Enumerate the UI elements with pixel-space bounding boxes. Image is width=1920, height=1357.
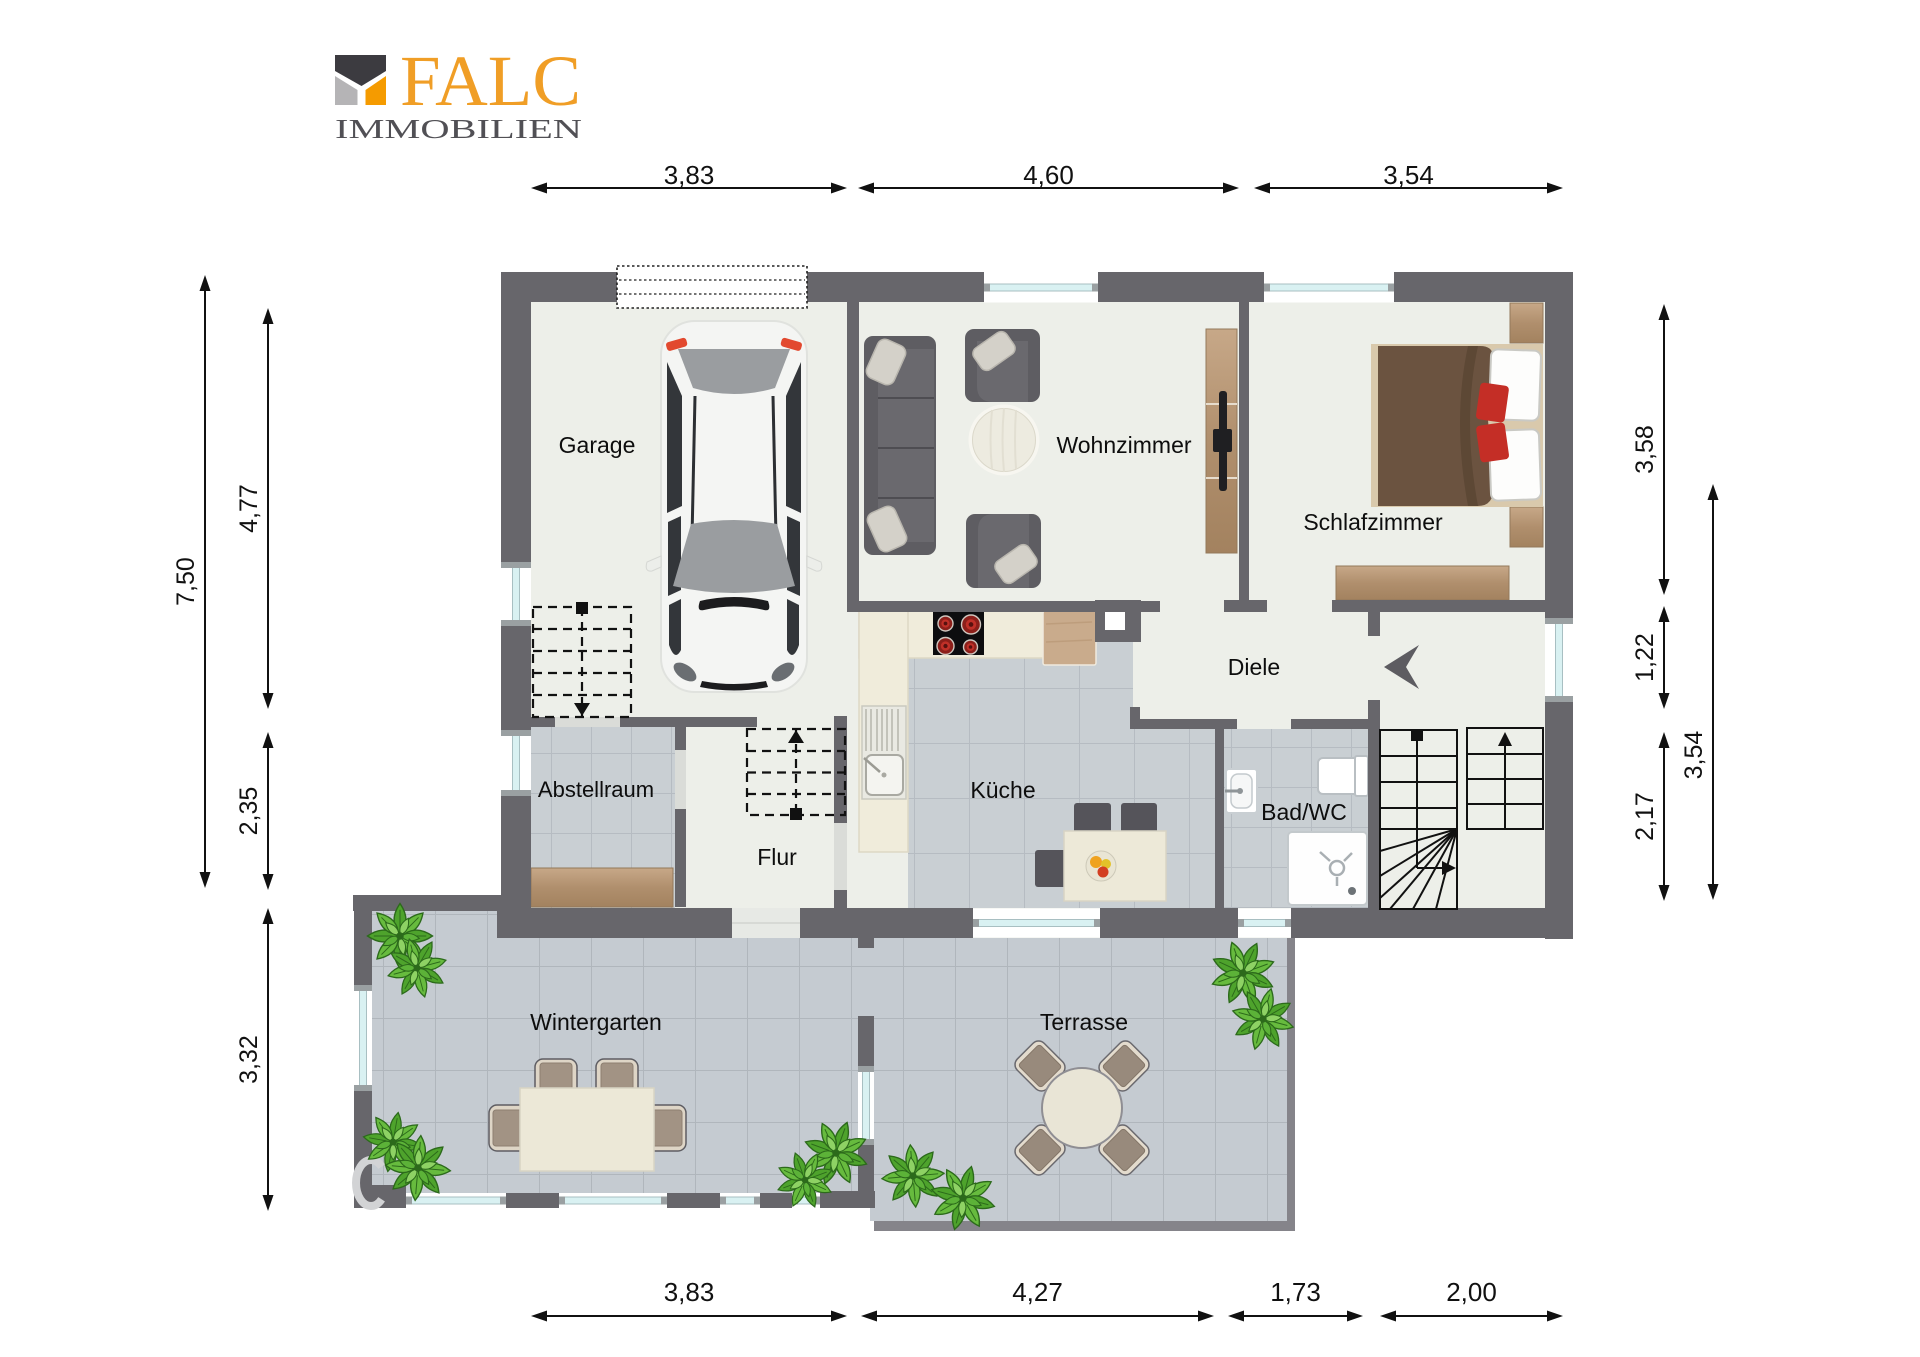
svg-text:FALC: FALC — [400, 41, 581, 121]
svg-text:1,22: 1,22 — [1631, 633, 1659, 682]
svg-text:Wohnzimmer: Wohnzimmer — [1056, 432, 1191, 458]
svg-text:Abstellraum: Abstellraum — [538, 777, 654, 802]
svg-text:Bad/WC: Bad/WC — [1261, 799, 1347, 825]
svg-text:Wintergarten: Wintergarten — [530, 1009, 662, 1035]
svg-text:3,54: 3,54 — [1383, 160, 1434, 190]
svg-text:4,60: 4,60 — [1023, 160, 1074, 190]
svg-text:Schlafzimmer: Schlafzimmer — [1303, 509, 1443, 535]
svg-text:3,83: 3,83 — [664, 160, 715, 190]
svg-text:4,77: 4,77 — [235, 484, 263, 533]
svg-text:4,27: 4,27 — [1012, 1277, 1063, 1307]
svg-text:2,00: 2,00 — [1446, 1277, 1497, 1307]
svg-text:3,54: 3,54 — [1680, 731, 1708, 780]
svg-text:3,58: 3,58 — [1631, 425, 1659, 474]
svg-text:Garage: Garage — [559, 432, 636, 458]
svg-text:2,17: 2,17 — [1631, 792, 1659, 841]
svg-text:Terrasse: Terrasse — [1040, 1009, 1128, 1035]
svg-text:3,32: 3,32 — [235, 1035, 263, 1084]
svg-text:Flur: Flur — [757, 844, 797, 870]
svg-text:Küche: Küche — [970, 777, 1035, 803]
svg-text:2,35: 2,35 — [235, 787, 263, 836]
svg-text:Diele: Diele — [1228, 654, 1280, 680]
svg-text:7,50: 7,50 — [172, 557, 200, 606]
svg-text:IMMOBILIEN: IMMOBILIEN — [335, 114, 582, 144]
svg-text:1,73: 1,73 — [1270, 1277, 1321, 1307]
svg-text:3,83: 3,83 — [664, 1277, 715, 1307]
